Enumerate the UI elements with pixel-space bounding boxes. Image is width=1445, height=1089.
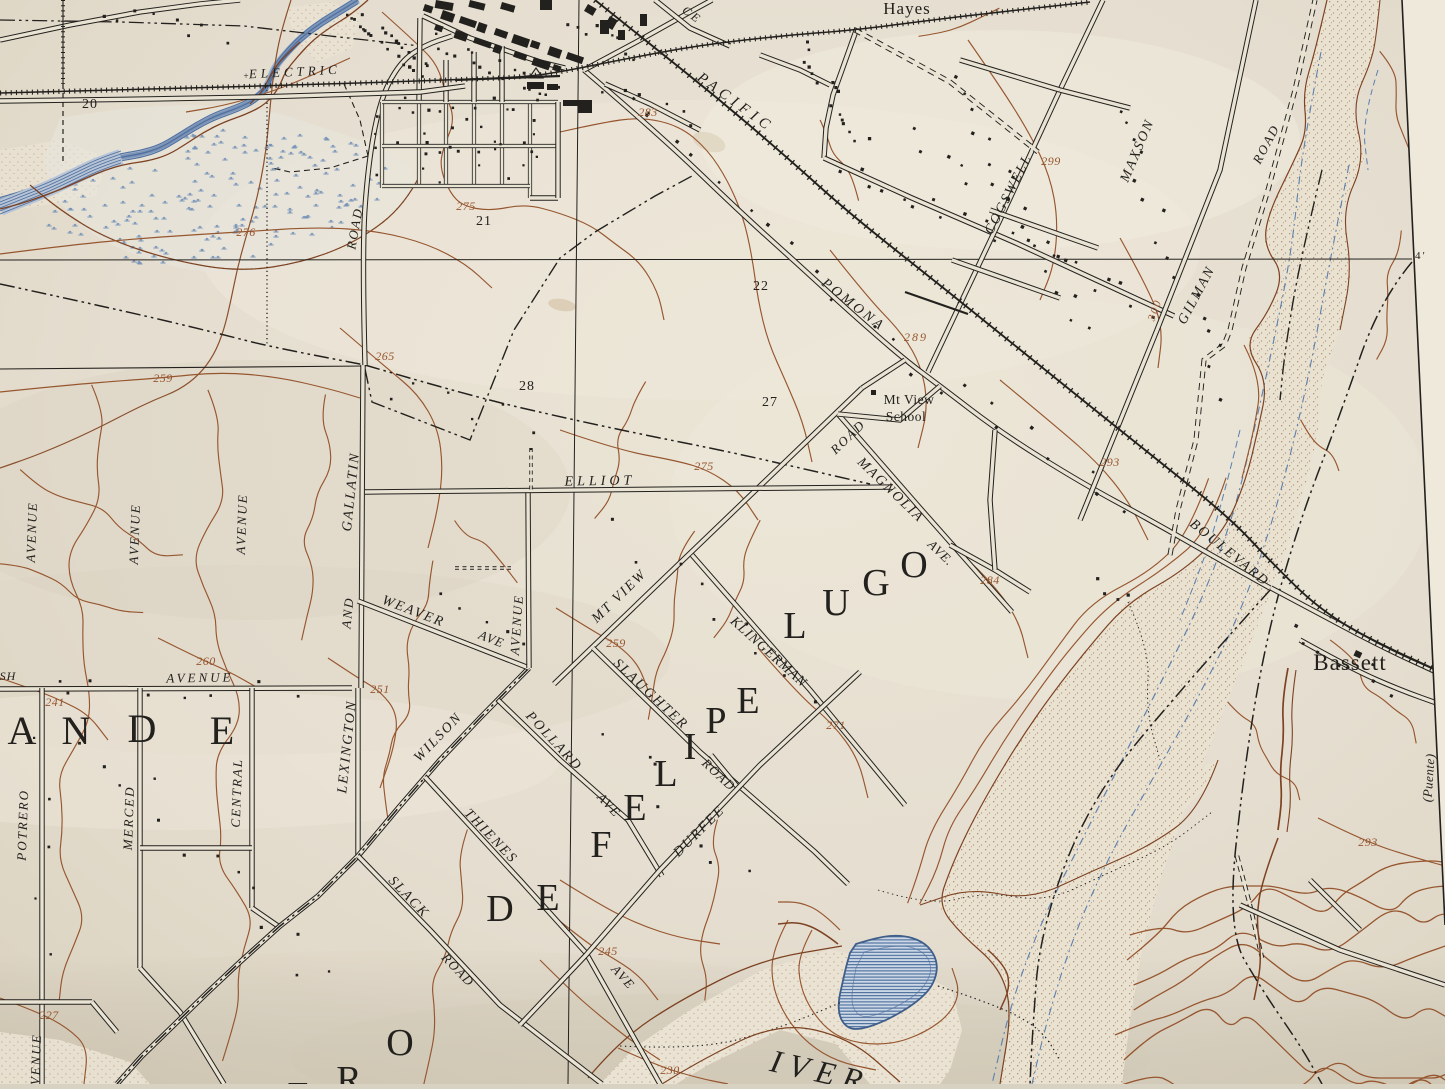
svg-text:SH: SH [0, 669, 17, 683]
svg-text:N: N [62, 708, 91, 753]
svg-text:AVENUE: AVENUE [23, 501, 40, 564]
svg-text:E: E [623, 787, 646, 829]
svg-text:4′: 4′ [1415, 250, 1427, 262]
svg-text:293: 293 [1100, 455, 1120, 469]
svg-text:E: E [736, 680, 759, 722]
svg-text:275: 275 [694, 459, 714, 473]
svg-text:G: G [862, 562, 889, 604]
svg-text:School: School [886, 409, 927, 424]
svg-text:AVENUE: AVENUE [233, 493, 250, 556]
svg-text:A: A [8, 708, 37, 753]
svg-text:AVENUE: AVENUE [126, 503, 143, 566]
svg-text:245: 245 [598, 944, 618, 958]
svg-text:E: E [287, 1075, 310, 1084]
svg-text:271: 271 [826, 718, 846, 732]
svg-text:22: 22 [753, 279, 769, 294]
svg-text:AVENUE: AVENUE [27, 1033, 44, 1084]
svg-text:284: 284 [980, 573, 1000, 587]
svg-text:259: 259 [153, 371, 173, 385]
svg-text:241: 241 [45, 695, 65, 709]
svg-text:289: 289 [904, 330, 928, 344]
svg-text:MERCED: MERCED [120, 785, 137, 851]
svg-text:275: 275 [456, 199, 476, 213]
svg-text:27: 27 [762, 395, 778, 410]
svg-text:L: L [783, 605, 806, 647]
svg-text:O: O [900, 544, 927, 586]
svg-text:D: D [486, 888, 513, 930]
svg-text:Bassett: Bassett [1313, 650, 1386, 675]
svg-text:D: D [128, 706, 157, 751]
svg-text:265: 265 [375, 349, 395, 363]
svg-text:230: 230 [660, 1063, 680, 1077]
svg-text:21: 21 [476, 214, 492, 229]
svg-text:AVENUE: AVENUE [165, 669, 233, 685]
svg-text:CENTRAL: CENTRAL [228, 758, 245, 828]
svg-text:259: 259 [606, 636, 626, 650]
svg-text:251: 251 [370, 682, 390, 696]
svg-text:U: U [822, 582, 849, 624]
svg-text:293: 293 [1358, 835, 1378, 849]
svg-text:+: + [243, 71, 250, 81]
svg-text:276: 276 [236, 225, 256, 239]
svg-text:F: F [590, 824, 611, 866]
svg-text:Hayes: Hayes [883, 0, 930, 18]
svg-text:O: O [386, 1022, 413, 1064]
svg-text:ELLIOT: ELLIOT [563, 473, 635, 489]
svg-text:227: 227 [39, 1008, 59, 1022]
svg-text:E: E [210, 708, 234, 753]
svg-text:L: L [654, 753, 677, 795]
svg-text:299: 299 [1041, 154, 1061, 168]
svg-text:P: P [705, 700, 726, 742]
svg-text:R: R [336, 1059, 362, 1084]
svg-text:Mt View: Mt View [884, 392, 935, 407]
svg-text:283: 283 [638, 105, 658, 119]
svg-text:28: 28 [519, 379, 535, 394]
svg-text:20: 20 [82, 97, 98, 112]
svg-text:POTRERO: POTRERO [14, 789, 32, 862]
svg-text:E: E [536, 877, 559, 919]
svg-text:260: 260 [196, 654, 216, 668]
svg-text:I: I [684, 726, 697, 768]
